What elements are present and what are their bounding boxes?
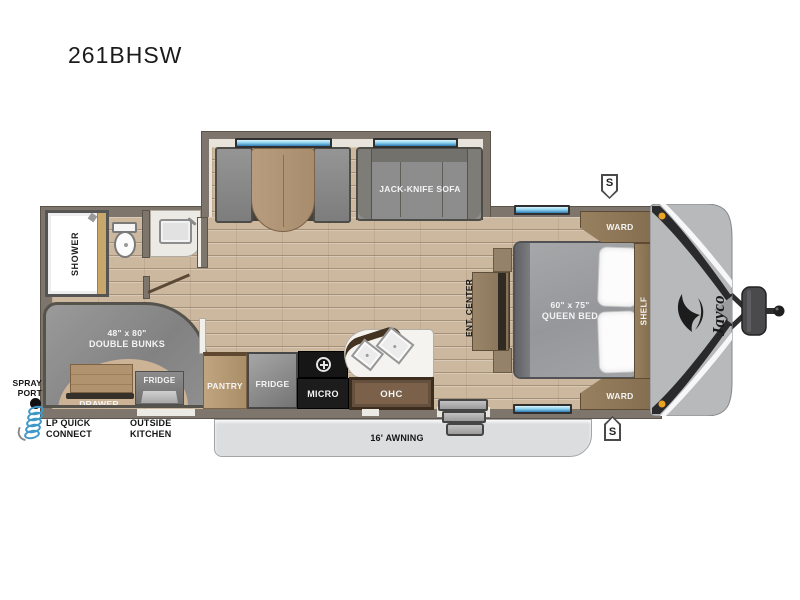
bed-foot-edge [515,243,530,377]
dinette-bench-right [313,147,351,223]
lp-quick-connect-label: LP QUICK CONNECT [46,418,112,439]
ohc-label: OHC [352,390,431,401]
wall-stub-face [198,218,201,267]
marker-light-top [659,213,666,220]
speaker-badge-bottom: S [604,416,621,441]
shower-label: SHOWER [70,231,80,275]
ent-center-front [498,273,506,350]
jack-knife-sofa: JACK-KNIFE SOFA [356,147,483,221]
entry-step-1 [438,399,488,411]
burner-icon [316,357,331,372]
jayco-logo-text: Jayco [709,295,728,337]
propane-tank [742,287,766,335]
speaker-badge-top-label: S [606,177,613,189]
ent-center-cabinet [472,272,509,351]
slideout-window-1 [235,138,332,148]
bedroom-window-top [514,205,570,215]
microwave: MICRO [297,378,349,409]
cooktop [298,351,348,378]
wardrobe-bottom-label: WARD [595,392,645,402]
spray-port-label: SPRAY PORT [4,378,42,398]
toilet-flush-dot [124,243,128,247]
slideout-window-2 [373,138,458,148]
entry-step-3 [446,423,484,436]
outside-fridge-label: FRIDGE [136,377,183,386]
table-seam [283,155,284,227]
outside-kitchen-drawer [70,364,133,393]
overhead-cabinet: OHC [349,377,434,410]
bed-pillow-2 [597,310,639,373]
bathroom-door-jamb [143,276,150,299]
double-bunks: 48" x 80" DOUBLE BUNKS FRIDGE DRAWER [43,302,208,408]
showerhead-icon [88,213,98,223]
shelf-label: SHELF [641,297,650,326]
vanity-sink [159,219,192,244]
sofa-armrest-left [358,149,372,219]
bedroom-window-bottom [513,404,572,414]
sofa-label: JACK-KNIFE SOFA [372,185,468,195]
outside-fridge: FRIDGE [135,371,184,405]
sofa-armrest-right [467,149,481,219]
toilet-bowl [114,231,136,258]
speaker-badge-bottom-label: S [609,426,616,438]
bunks-label: 48" x 80" DOUBLE BUNKS [54,329,200,349]
awning-label: 16' AWNING [347,433,447,443]
speaker-badge-top: S [601,174,618,199]
living-wall-stub [197,217,208,268]
microwave-label: MICRO [298,389,348,399]
bed-pillow-1 [597,246,639,307]
kitchen-wall-end [199,318,206,354]
shower-door-strip [97,213,106,294]
kitchen-fridge-label: FRIDGE [249,380,296,390]
floorplan-canvas: 261BHSW 16' AWNING JACK-KNIFE SOFA SHOWE… [0,0,800,600]
vanity [150,210,201,257]
dinette-table [251,148,315,232]
sofa-back-cushion [358,149,481,162]
front-cap: Jayco [650,204,734,416]
ent-center-panel-bottom [493,348,512,373]
ent-center-panel-top [493,248,512,272]
shower: SHOWER [45,210,109,297]
ent-center-label: ENT. CENTER [465,279,475,337]
bathroom-wall-divider [142,210,150,258]
drawer-label: DRAWER [64,400,134,408]
pantry-label: PANTRY [204,382,246,392]
pantry: PANTRY [203,352,247,409]
bunks-size: 48" x 80" [54,329,200,339]
kitchen-fridge: FRIDGE [247,352,298,409]
outside-kitchen-label: OUTSIDE KITCHEN [130,418,192,439]
entry-step-2 [442,411,486,423]
outside-fridge-door [141,391,178,403]
marker-light-bottom [659,401,666,408]
page-title: 261BHSW [68,42,182,69]
dinette-bench-left [215,147,253,223]
bunks-name: DOUBLE BUNKS [54,339,200,349]
hitch-ball [774,306,785,317]
outside-kitchen-hatch [137,409,195,416]
utility-hatch [362,409,379,416]
wardrobe-top-label: WARD [595,223,645,233]
